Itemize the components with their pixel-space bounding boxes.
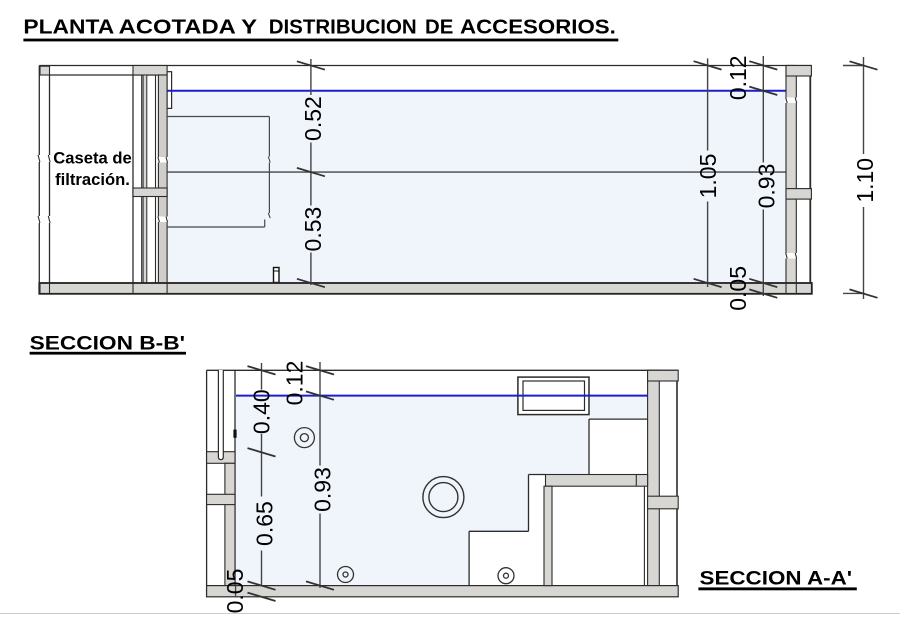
svg-text:0.65: 0.65 — [251, 501, 277, 546]
svg-text:SECCION A-A': SECCION A-A' — [700, 568, 853, 589]
svg-text:PLANTA: PLANTA — [23, 16, 114, 39]
svg-text:0.93: 0.93 — [310, 467, 336, 512]
svg-text:DISTRIBUCION: DISTRIBUCION — [269, 16, 417, 39]
svg-text:0.52: 0.52 — [300, 96, 326, 141]
svg-text:0.12: 0.12 — [281, 361, 307, 406]
svg-text:DE: DE — [425, 16, 453, 39]
svg-text:0.05: 0.05 — [725, 266, 751, 311]
svg-text:0.05: 0.05 — [222, 569, 248, 614]
svg-text:ACCESORIOS.: ACCESORIOS. — [460, 16, 616, 39]
svg-text:0.40: 0.40 — [249, 389, 275, 434]
svg-text:0.12: 0.12 — [725, 55, 751, 100]
svg-text:SECCION B-B': SECCION B-B' — [30, 334, 185, 355]
svg-text:Caseta de: Caseta de — [53, 149, 131, 168]
svg-text:1.05: 1.05 — [695, 154, 721, 199]
svg-text:Y: Y — [241, 16, 257, 39]
svg-text:0.53: 0.53 — [300, 207, 326, 252]
svg-text:filtración.: filtración. — [55, 170, 130, 189]
svg-text:1.10: 1.10 — [852, 158, 878, 203]
svg-text:ACOTADA: ACOTADA — [119, 16, 236, 39]
svg-text:0.93: 0.93 — [753, 164, 779, 209]
